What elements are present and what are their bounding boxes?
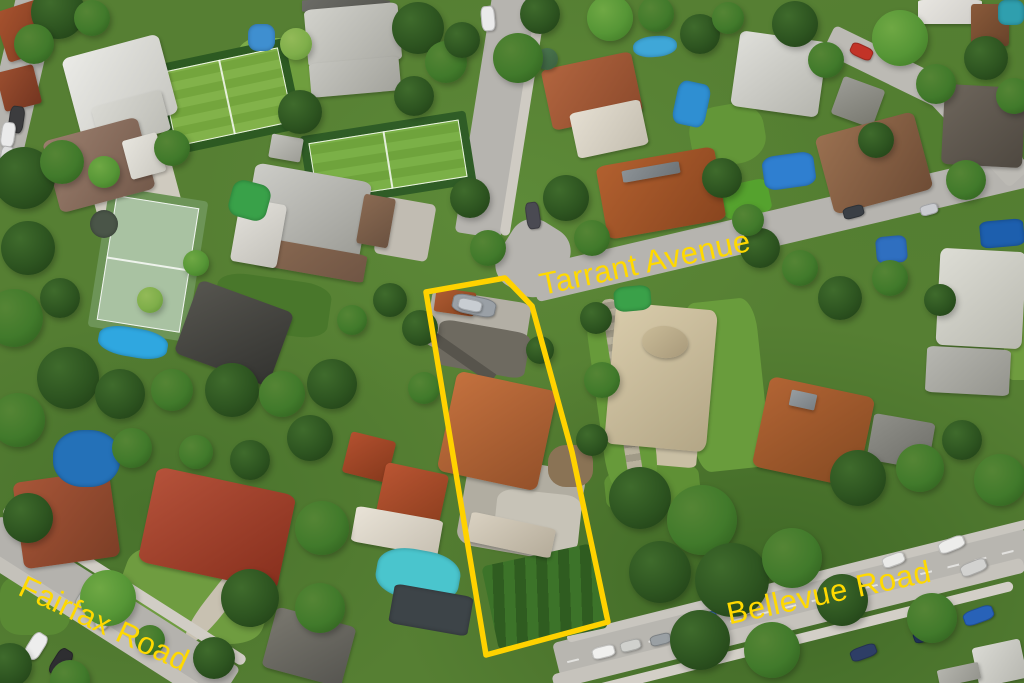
tree xyxy=(259,371,305,417)
tree xyxy=(946,160,986,200)
tree xyxy=(151,369,193,411)
pool xyxy=(90,210,118,238)
pool xyxy=(761,151,817,192)
tree xyxy=(587,0,633,41)
tree xyxy=(584,362,620,398)
tree xyxy=(744,622,800,678)
tree xyxy=(402,310,438,346)
tree xyxy=(580,302,612,334)
tree xyxy=(712,2,744,34)
tree xyxy=(996,78,1024,114)
pool xyxy=(632,34,678,59)
tree xyxy=(830,450,886,506)
car xyxy=(961,603,995,628)
tree xyxy=(872,260,908,296)
tree xyxy=(702,158,742,198)
tree xyxy=(872,10,928,66)
tree xyxy=(278,90,322,134)
car xyxy=(480,5,496,31)
tree xyxy=(924,284,956,316)
tree xyxy=(896,444,944,492)
tree xyxy=(373,283,407,317)
tree xyxy=(942,420,982,460)
tree xyxy=(408,372,440,404)
tree xyxy=(137,287,163,313)
tree xyxy=(782,250,818,286)
pool xyxy=(613,284,652,312)
tree xyxy=(526,336,554,364)
pool xyxy=(53,430,120,487)
house xyxy=(437,371,558,492)
tree xyxy=(638,0,674,32)
tree xyxy=(493,33,543,83)
house xyxy=(309,56,402,98)
tree xyxy=(193,637,235,679)
tree xyxy=(287,415,333,461)
tree xyxy=(818,276,862,320)
pool xyxy=(248,24,275,51)
house xyxy=(937,662,982,683)
tree xyxy=(37,347,99,409)
tree xyxy=(576,424,608,456)
tree xyxy=(808,42,844,78)
car xyxy=(849,642,879,663)
aerial-photo: Tarrant Avenue Fairfax Road Bellevue Roa… xyxy=(0,0,1024,683)
tree xyxy=(295,583,345,633)
tree xyxy=(1,221,55,275)
tree xyxy=(0,393,45,447)
pool xyxy=(998,0,1024,25)
tree xyxy=(609,467,671,529)
tree xyxy=(907,593,957,643)
tree xyxy=(444,22,480,58)
tree xyxy=(112,428,152,468)
tree xyxy=(205,363,259,417)
tree xyxy=(3,493,53,543)
pool xyxy=(388,583,474,636)
tree xyxy=(337,305,367,335)
tree xyxy=(543,175,589,221)
car xyxy=(524,201,542,230)
tree xyxy=(280,28,312,60)
tree xyxy=(574,220,610,256)
tree xyxy=(772,1,818,47)
house xyxy=(925,346,1011,396)
tree xyxy=(450,178,490,218)
tree xyxy=(394,76,434,116)
tree xyxy=(154,130,190,166)
tree xyxy=(470,230,506,266)
tree xyxy=(230,440,270,480)
house xyxy=(730,30,828,118)
tree xyxy=(221,569,279,627)
tree xyxy=(295,501,349,555)
house xyxy=(268,133,304,162)
tree xyxy=(307,359,357,409)
tree xyxy=(74,0,110,36)
tree xyxy=(670,610,730,670)
tree xyxy=(629,541,691,603)
tree xyxy=(95,369,145,419)
tree xyxy=(916,64,956,104)
tree xyxy=(14,24,54,64)
house xyxy=(604,302,718,452)
tree xyxy=(520,0,560,34)
tree xyxy=(0,289,43,347)
tree xyxy=(40,140,84,184)
tree xyxy=(974,454,1024,506)
tree xyxy=(40,278,80,318)
pool xyxy=(979,218,1024,249)
tree xyxy=(183,250,209,276)
tree xyxy=(88,156,120,188)
tree xyxy=(858,122,894,158)
tree xyxy=(179,435,213,469)
tree xyxy=(964,36,1008,80)
